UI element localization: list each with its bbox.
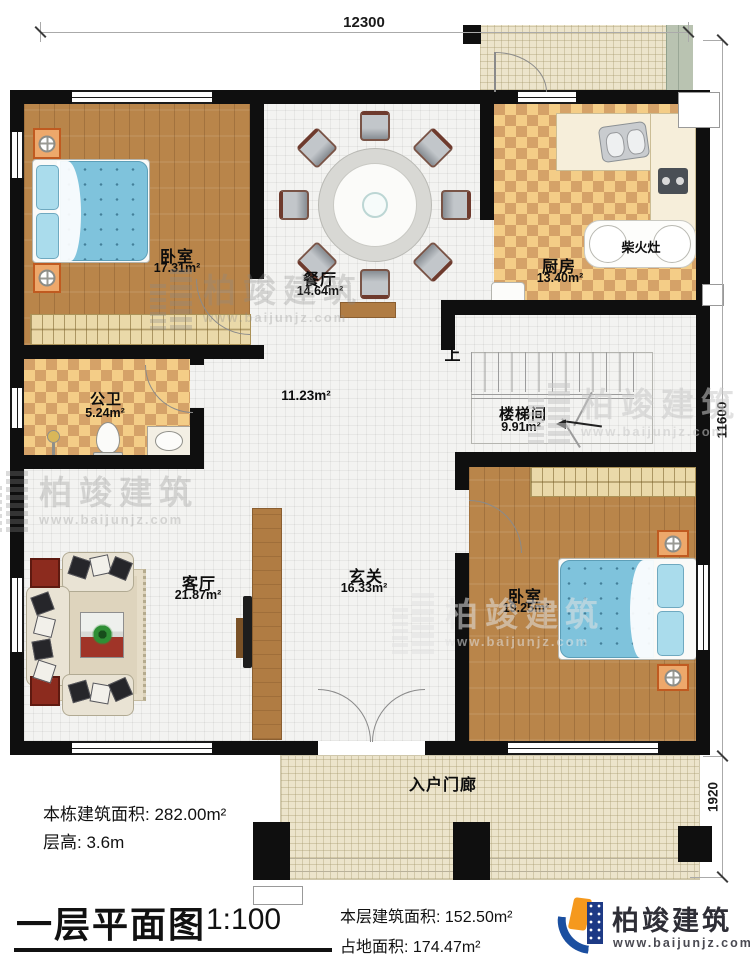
porch-pillar: [453, 822, 490, 880]
bath-area: 5.24m²: [85, 406, 125, 420]
plant-icon: [92, 624, 113, 645]
title-underline: [14, 948, 332, 952]
dining-chair: [279, 190, 309, 220]
wall-bath-hall: [190, 408, 204, 455]
pillow: [36, 165, 59, 210]
dim-right-lower-value: 1920: [706, 782, 721, 812]
stair-rail: [471, 394, 634, 399]
plan-scale: 1:100: [206, 903, 281, 937]
stair-arrow-head: [556, 419, 566, 429]
bedroom1-area: 17.31m²: [154, 261, 201, 275]
blanket-fold: [630, 560, 654, 658]
building-area-note: 本栋建筑面积: 282.00m²: [43, 800, 226, 825]
sink-basin: [605, 131, 626, 158]
dim-line-top: [40, 32, 688, 33]
toilet: [96, 422, 120, 454]
floor-area-line: 本层建筑面积: 152.50m²: [340, 903, 513, 927]
dim-right-value: 11600: [715, 402, 730, 439]
lamp-icon: [39, 270, 56, 287]
dim-ext-line: [690, 877, 723, 878]
floor-area-value: 152.50m²: [445, 909, 513, 926]
logo-building-navy: [587, 902, 603, 944]
land-area-label: 占地面积:: [340, 939, 408, 956]
tv-console: [236, 618, 243, 658]
dining-chair: [441, 190, 471, 220]
porch-step-line: [282, 858, 698, 859]
lamp-icon: [665, 535, 682, 552]
dim-line-right: [722, 40, 723, 877]
door-leaf-patio: [494, 52, 496, 92]
lamp-icon: [665, 669, 682, 686]
floor-height-label: 层高:: [43, 833, 82, 852]
wall-bath-living: [10, 455, 204, 469]
burner-dot: [676, 177, 684, 185]
sideboard: [340, 302, 396, 318]
porch-step-line: [282, 871, 698, 872]
lamp-icon: [39, 135, 56, 152]
plan-title: 一层平面图: [16, 896, 206, 948]
nightstand: [657, 530, 689, 557]
pillow: [657, 564, 684, 608]
wall-right: [696, 90, 710, 755]
window: [696, 565, 710, 650]
pillow: [36, 213, 59, 259]
window: [10, 388, 24, 428]
nightstand: [33, 128, 61, 159]
tv: [243, 596, 252, 668]
land-area-value: 174.47m²: [413, 939, 481, 956]
floor-height-note: 层高: 3.6m: [43, 828, 124, 853]
wall-bedroom1-dining: [250, 104, 264, 279]
land-area-line: 占地面积: 174.47m²: [340, 933, 481, 957]
stair-treads: [471, 352, 634, 392]
window: [72, 90, 212, 104]
dining-chair: [360, 111, 390, 141]
floor-plan-canvas: 柴火灶: [0, 0, 750, 970]
wall-foyer-bedroom2: [455, 553, 469, 741]
stair-up-label: 上: [444, 341, 461, 365]
kitchen-area: 13.40m²: [537, 271, 584, 285]
dining-area: 14.64m²: [297, 284, 344, 298]
floor-area-label: 本层建筑面积:: [340, 909, 440, 926]
patio-corner-box: [678, 92, 720, 128]
building-area-value: 282.00m²: [154, 805, 226, 824]
sink-basin: [625, 128, 646, 155]
wall-foyer-bedroom2-stub: [455, 467, 469, 490]
bedroom2-area: 19.25m²: [503, 601, 550, 615]
porch-floor: [280, 755, 700, 880]
patio-pillar: [463, 25, 481, 44]
window: [10, 578, 24, 652]
gas-hob: [658, 168, 688, 194]
wall-bedroom1-bath: [10, 345, 264, 359]
flue-box: [702, 284, 724, 306]
wall-dining-kitchen: [480, 104, 494, 220]
wardrobe: [530, 467, 696, 497]
brand-website: www.baijunjz.com: [613, 936, 750, 950]
side-table: [30, 558, 60, 588]
dim-ext-line: [703, 756, 723, 757]
window: [518, 90, 576, 104]
foyer-area: 16.33m²: [341, 581, 388, 595]
shower-head-icon: [47, 430, 60, 443]
lazy-susan: [362, 192, 388, 218]
nightstand: [33, 263, 61, 293]
kitchen-sink: [598, 121, 651, 163]
tv-wall: [252, 508, 282, 740]
dim-top-value: 12300: [343, 14, 385, 31]
sofa-cushion: [31, 638, 53, 660]
window: [508, 741, 658, 755]
bath-sink: [155, 431, 183, 451]
dim-ext-line: [703, 40, 723, 41]
window: [72, 741, 212, 755]
dining-chair: [360, 269, 390, 299]
porch-corner-block: [678, 826, 712, 862]
patio-step-line: [678, 25, 679, 90]
nightstand: [657, 664, 689, 691]
living-area: 21.87m²: [175, 588, 222, 602]
entry-door-opening: [318, 741, 425, 755]
stairwell-area: 9.91m²: [501, 420, 541, 434]
porch-label: 入户门廊: [409, 771, 477, 795]
brand-name: 柏竣建筑: [612, 899, 732, 938]
burner-dot: [662, 177, 670, 185]
building-area-label: 本栋建筑面积:: [43, 805, 150, 824]
porch-pillar: [253, 822, 290, 880]
pillow: [657, 611, 684, 656]
wall-bedroom2-top: [455, 452, 710, 467]
window: [10, 132, 24, 178]
hall-area: 11.23m²: [281, 388, 331, 403]
wall-kitchen-bottom: [455, 300, 710, 315]
floor-height-value: 3.6m: [86, 833, 124, 852]
stove-label: 柴火灶: [621, 237, 660, 256]
brand-logo-icon: [556, 896, 608, 958]
